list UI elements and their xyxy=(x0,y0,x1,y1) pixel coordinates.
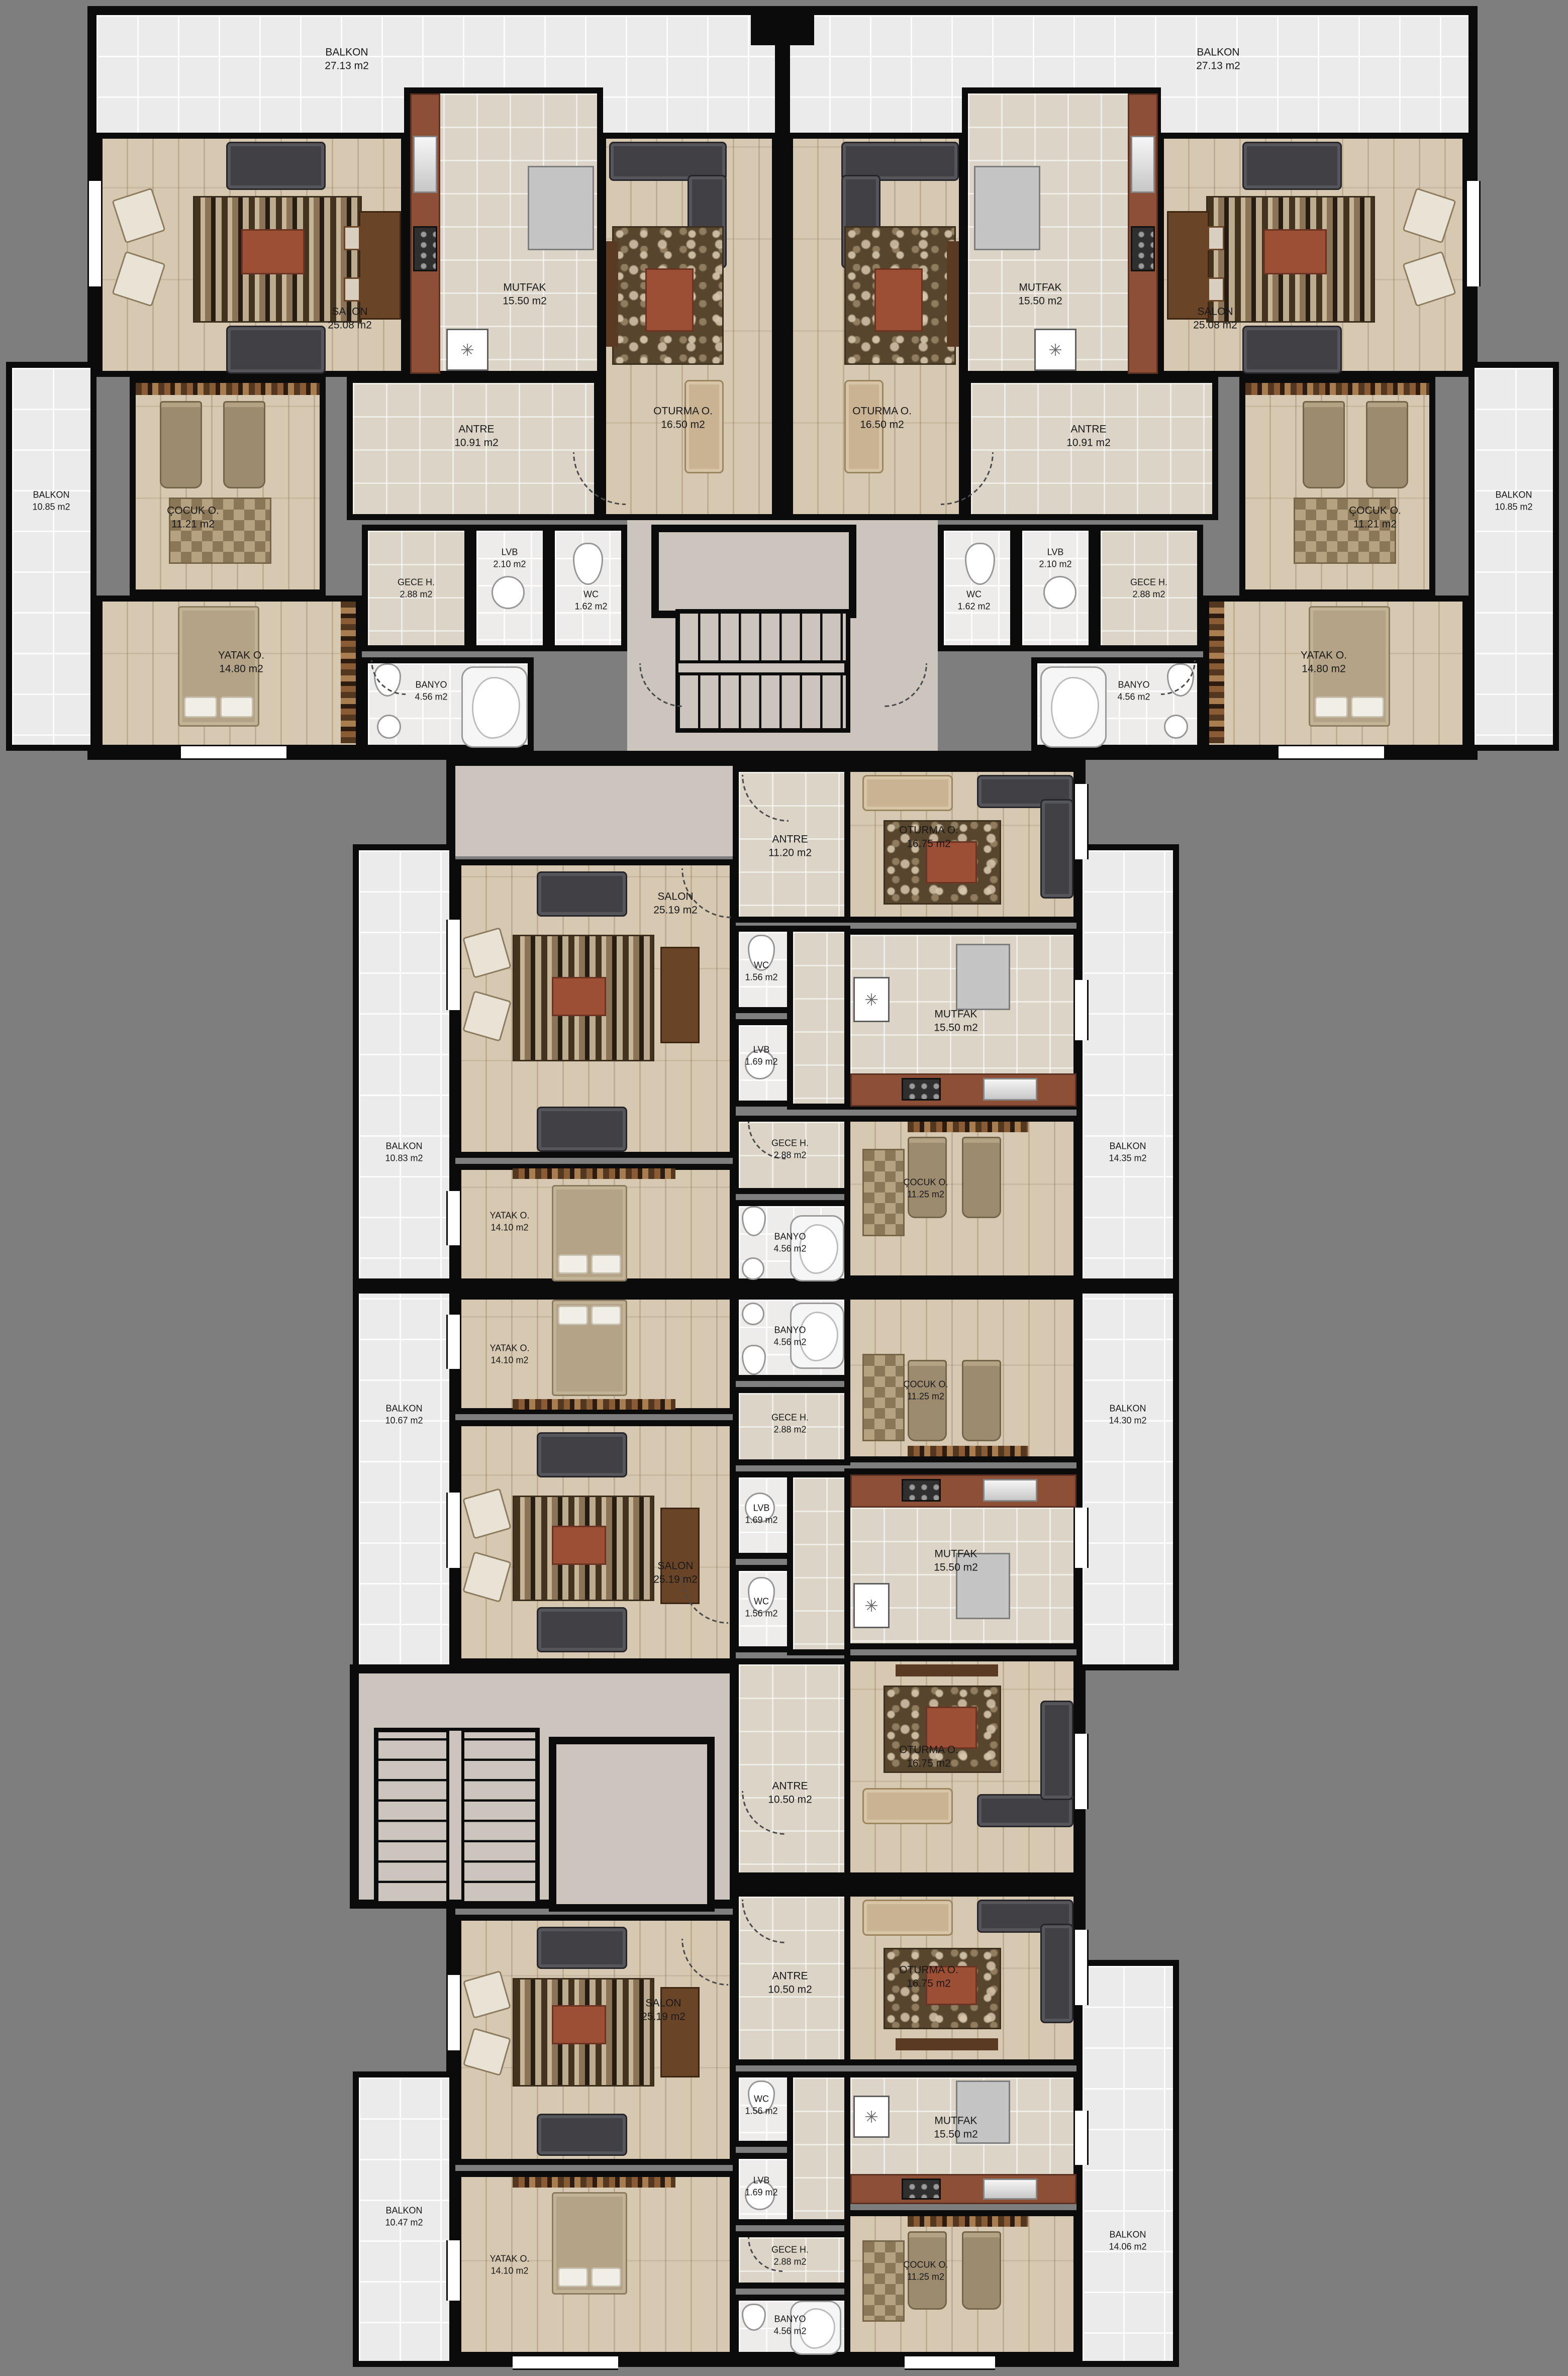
room-label-gece-b: GECE H.2.88 m2 xyxy=(1130,579,1167,603)
room-label-antre-d: ANTRE10.50 m2 xyxy=(768,1780,812,1808)
refrigerator-icon: ✳ xyxy=(864,2107,878,2127)
sofa xyxy=(537,1107,627,1152)
balcony-side-a xyxy=(6,362,96,751)
room-label-yatak-c: YATAK O.14.10 m2 xyxy=(489,1213,529,1236)
room-label-cocuk-c: ÇOCUK O.11.25 m2 xyxy=(903,1179,948,1203)
chair xyxy=(344,226,360,250)
refrigerator-icon: ✳ xyxy=(460,340,474,360)
window xyxy=(1073,784,1089,859)
coffee-table xyxy=(241,229,305,274)
room-label-balkon-a: BALKON27.13 m2 xyxy=(325,47,369,74)
wardrobe xyxy=(513,1168,675,1179)
stove xyxy=(902,1479,941,1502)
sofa xyxy=(1040,799,1073,899)
stove xyxy=(902,2179,941,2200)
sofa xyxy=(537,1927,627,1969)
room-label-yatak-a: YATAK O.14.80 m2 xyxy=(218,650,264,677)
room-label-gece-e: GECE H.2.88 m2 xyxy=(771,2247,809,2270)
room-label-wc-c: WC1.56 m2 xyxy=(745,962,777,986)
sofa xyxy=(862,1900,953,1936)
room-label-oturma-d: OTURMA O.16.75 m2 xyxy=(899,1744,958,1772)
single-bed xyxy=(223,401,265,488)
kitchen-counter xyxy=(850,2174,1076,2204)
sofa xyxy=(1040,1701,1073,1800)
bathtub xyxy=(461,666,528,748)
wash-basin xyxy=(742,1303,764,1325)
window xyxy=(905,2355,995,2370)
single-bed xyxy=(962,2231,1001,2310)
refrigerator: ✳ xyxy=(853,2096,890,2138)
coffee-table xyxy=(552,1526,606,1565)
single-bed xyxy=(908,1137,947,1218)
corridor-e xyxy=(787,2071,850,2225)
room-label-salon-d: SALON25.19 m2 xyxy=(653,1560,698,1588)
room-label-balkon-side-a: BALKON10.85 m2 xyxy=(32,492,70,516)
floor-plan: ✳ ✳ ✳ xyxy=(0,0,1568,2376)
room-label-oturma-a: OTURMA O.16.50 m2 xyxy=(653,406,713,433)
sofa xyxy=(862,775,953,811)
window xyxy=(446,1975,461,2050)
room-label-cocuk-b: ÇOCUK O.11.21 m2 xyxy=(1349,505,1401,533)
wardrobe xyxy=(136,383,320,395)
room-label-mutfak-a: MUTFAK15.50 m2 xyxy=(503,282,547,310)
room-label-mutfak-c: MUTFAK15.50 m2 xyxy=(934,1009,978,1036)
room-label-mutfak-d: MUTFAK15.50 m2 xyxy=(934,1548,978,1576)
room-label-lvb-e: LVB1.69 m2 xyxy=(745,2177,777,2201)
room-label-wc-d: WC1.56 m2 xyxy=(745,1599,777,1622)
wardrobe xyxy=(513,1399,675,1410)
wash-basin xyxy=(742,1257,764,1280)
bathtub-basin xyxy=(472,677,520,738)
single-bed xyxy=(1366,401,1408,488)
rug xyxy=(862,1149,905,1236)
room-label-banyo-d: BANYO4.56 m2 xyxy=(773,1327,806,1351)
dining-table xyxy=(359,211,401,320)
refrigerator-icon: ✳ xyxy=(864,990,878,1010)
dining-table xyxy=(660,947,700,1043)
refrigerator: ✳ xyxy=(853,1583,890,1628)
sofa xyxy=(537,1607,627,1652)
stove xyxy=(1131,226,1155,271)
room-label-cocuk-d: ÇOCUK O.11.25 m2 xyxy=(903,1381,948,1405)
balcony-side-b xyxy=(1468,362,1559,751)
room-label-yatak-b: YATAK O.14.80 m2 xyxy=(1301,650,1347,677)
kitchen-sink xyxy=(983,1078,1037,1101)
room-label-mutfak-e: MUTFAK15.50 m2 xyxy=(934,2115,978,2143)
kitchen-counter xyxy=(850,1474,1076,1508)
coffee-table xyxy=(552,977,606,1016)
stairs-landing xyxy=(675,660,847,675)
tv-unit xyxy=(896,2038,998,2050)
coffee-table xyxy=(552,2005,606,2044)
room-label-salon-e: SALON25.19 m2 xyxy=(641,1998,685,2025)
room-label-banyo-c: BANYO4.56 m2 xyxy=(773,1234,806,1257)
room-label-gece-a: GECE H.2.88 m2 xyxy=(398,579,435,603)
room-label-antre-a: ANTRE10.91 m2 xyxy=(454,424,499,451)
room-label-antre-b: ANTRE10.91 m2 xyxy=(1066,424,1111,451)
bathtub-basin xyxy=(1051,677,1099,738)
coffee-table xyxy=(1263,229,1327,274)
coffee-table xyxy=(926,1707,977,1749)
stove xyxy=(902,1078,941,1101)
corridor-c xyxy=(787,926,850,1110)
room-label-mutfak-b: MUTFAK15.50 m2 xyxy=(1018,282,1062,310)
core-landing-c xyxy=(455,766,736,856)
room-label-lvb-b: LVB2.10 m2 xyxy=(1039,549,1071,573)
floor-plan-canvas: ✳ ✳ ✳ xyxy=(0,0,1568,2376)
wardrobe xyxy=(341,602,356,743)
rug xyxy=(862,2240,905,2322)
wall xyxy=(775,12,790,136)
kitchen-table xyxy=(528,166,594,250)
refrigerator: ✳ xyxy=(853,977,890,1022)
window xyxy=(446,920,461,1010)
room-antre-d xyxy=(733,1658,850,1878)
window xyxy=(513,2355,618,2370)
room-label-banyo-a: BANYO4.56 m2 xyxy=(415,682,447,706)
wash-basin xyxy=(1164,715,1188,739)
refrigerator: ✳ xyxy=(446,329,488,371)
room-label-oturma-e: OTURMA O.16.75 m2 xyxy=(899,1964,958,1992)
pillow xyxy=(591,1254,621,1274)
balcony-left-cd xyxy=(353,844,455,1670)
kitchen-table xyxy=(956,944,1010,1010)
sofa xyxy=(226,326,326,374)
wall xyxy=(733,1878,1086,1891)
kitchen-counter xyxy=(850,1073,1076,1107)
sofa xyxy=(226,142,326,190)
window xyxy=(1073,1508,1089,1568)
sofa xyxy=(537,2114,627,2156)
kitchen-table xyxy=(974,166,1040,250)
window xyxy=(446,1191,461,1245)
room-label-balkon-b: BALKON27.13 m2 xyxy=(1196,47,1240,74)
wardrobe xyxy=(908,2216,1028,2227)
room-label-balkon-l-e: BALKON10.47 m2 xyxy=(385,2208,423,2231)
room-label-balkon-r-d: BALKON14.30 m2 xyxy=(1109,1406,1146,1429)
window xyxy=(1279,745,1384,760)
window xyxy=(1073,1930,1089,2005)
room-label-banyo-e: BANYO4.56 m2 xyxy=(773,2316,806,2340)
tv-unit xyxy=(606,241,618,347)
room-label-yatak-e: YATAK O.14.10 m2 xyxy=(489,2256,529,2280)
window xyxy=(446,1493,461,1568)
window xyxy=(1465,181,1481,286)
room-label-oturma-b: OTURMA O.16.50 m2 xyxy=(852,406,912,433)
refrigerator-icon: ✳ xyxy=(864,1596,878,1616)
room-label-lvb-d: LVB1.69 m2 xyxy=(745,1505,777,1529)
room-label-salon-c: SALON25.19 m2 xyxy=(653,891,698,919)
chair xyxy=(1208,277,1224,302)
kitchen-sink xyxy=(983,1479,1037,1502)
room-label-balkon-r-e: BALKON14.06 m2 xyxy=(1109,2232,1146,2255)
window xyxy=(87,181,103,286)
pillow xyxy=(1351,697,1384,718)
room-label-oturma-c: OTURMA O.16.75 m2 xyxy=(899,825,958,852)
room-label-lvb-c: LVB1.69 m2 xyxy=(745,1047,777,1070)
stove xyxy=(413,226,437,271)
room-label-yatak-d: YATAK O.14.10 m2 xyxy=(489,1345,529,1369)
sofa xyxy=(537,1432,627,1477)
sofa xyxy=(862,1788,953,1824)
single-bed xyxy=(962,1137,1001,1218)
wash-basin xyxy=(377,715,401,739)
wall xyxy=(353,1278,455,1294)
window xyxy=(181,745,286,760)
wardrobe xyxy=(1245,383,1429,395)
room-label-gece-d: GECE H.2.88 m2 xyxy=(771,1415,809,1438)
tv-unit xyxy=(896,1664,998,1676)
wash-basin xyxy=(492,576,525,609)
room-label-balkon-side-b: BALKON10.85 m2 xyxy=(1495,492,1532,516)
kitchen-sink xyxy=(413,136,437,193)
wardrobe xyxy=(513,2177,675,2188)
dining-table xyxy=(1167,211,1209,320)
wardrobe xyxy=(1209,602,1224,743)
room-label-antre-e: ANTRE10.50 m2 xyxy=(768,1970,812,1998)
window xyxy=(446,2240,461,2301)
room-label-wc-a: WC1.62 m2 xyxy=(574,591,607,615)
single-bed xyxy=(962,1360,1001,1441)
pillow xyxy=(220,697,253,718)
room-label-cocuk-a: ÇOCUK O.11.21 m2 xyxy=(167,505,219,533)
coffee-table xyxy=(874,268,923,332)
balcony-right-cd xyxy=(1076,844,1179,1670)
stairs-landing xyxy=(446,1728,464,1903)
pillow xyxy=(558,1254,588,1274)
chair xyxy=(1208,226,1224,250)
pillow xyxy=(558,1306,588,1325)
balcony-right-e xyxy=(1076,1960,1179,2367)
room-label-balkon-r-c: BALKON14.35 m2 xyxy=(1109,1143,1146,1167)
room-label-wc-b: WC1.62 m2 xyxy=(957,591,990,615)
rug xyxy=(862,1354,905,1441)
sofa xyxy=(1040,1924,1073,2023)
sofa xyxy=(1242,142,1342,190)
chair xyxy=(344,277,360,302)
refrigerator-icon: ✳ xyxy=(1048,340,1062,360)
pillow xyxy=(558,2267,588,2287)
room-label-antre-c: ANTRE11.20 m2 xyxy=(768,834,812,861)
tv-unit xyxy=(947,241,959,347)
pillow xyxy=(591,1306,621,1325)
elevator xyxy=(549,1737,715,1912)
wash-basin xyxy=(1043,576,1076,609)
bathtub xyxy=(1040,666,1107,748)
room-label-wc-e: WC1.56 m2 xyxy=(745,2096,777,2120)
wardrobe xyxy=(908,1446,1028,1456)
wardrobe xyxy=(908,1122,1028,1132)
sofa xyxy=(1242,326,1342,374)
wall xyxy=(446,1281,1086,1294)
single-bed xyxy=(160,401,202,488)
single-bed xyxy=(1303,401,1345,488)
pillow xyxy=(1315,697,1348,718)
wall xyxy=(1076,1278,1179,1294)
kitchen-sink xyxy=(983,2179,1037,2200)
window xyxy=(1073,980,1089,1040)
pillow xyxy=(591,2267,621,2287)
corridor-d xyxy=(787,1471,850,1655)
elevator xyxy=(651,525,856,618)
room-label-salon-b: SALON25.08 m2 xyxy=(1193,306,1237,334)
room-label-salon-a: SALON25.08 m2 xyxy=(328,306,372,334)
room-label-lvb-a: LVB2.10 m2 xyxy=(493,549,526,573)
coffee-table xyxy=(645,268,694,332)
room-label-banyo-b: BANYO4.56 m2 xyxy=(1117,682,1150,706)
room-label-balkon-l-c: BALKON10.83 m2 xyxy=(385,1143,423,1167)
window xyxy=(1073,1734,1089,1809)
window xyxy=(446,1315,461,1369)
sofa xyxy=(537,871,627,917)
window xyxy=(1073,2111,1089,2165)
room-label-gece-c: GECE H.2.88 m2 xyxy=(771,1140,809,1164)
room-label-cocuk-e: ÇOCUK O.11.25 m2 xyxy=(903,2262,948,2286)
room-label-balkon-l-d: BALKON10.67 m2 xyxy=(385,1406,423,1429)
refrigerator: ✳ xyxy=(1034,329,1076,371)
kitchen-sink xyxy=(1131,136,1155,193)
pillow xyxy=(184,697,217,718)
